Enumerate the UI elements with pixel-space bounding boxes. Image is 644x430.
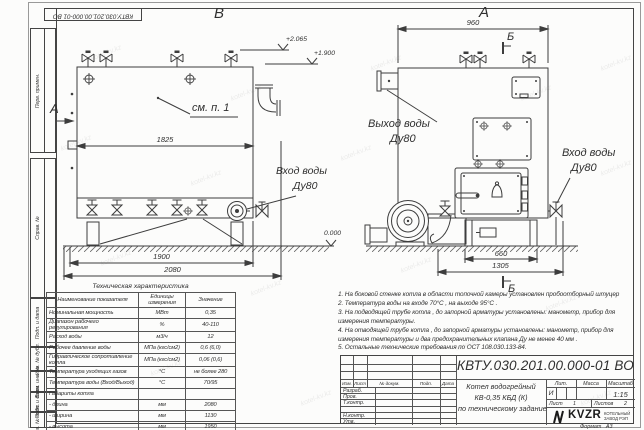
spec-name: Температура уходящих газов	[47, 367, 139, 378]
inlet-water-label-right-1: Вход воды	[562, 148, 615, 159]
sheet-label: Лист	[549, 401, 563, 407]
note-line: 2. Температура воды на входе 70°С , на в…	[338, 300, 636, 309]
spec-name: Рабочее давление воды	[47, 343, 139, 354]
callout-see-note-1: см. п. 1	[192, 103, 229, 114]
right-view-drawing	[365, 25, 578, 288]
kvzr-logo: KVZR КОТЕЛЬНЫЙ ЗАВОД РЭП	[546, 407, 635, 425]
dim-2080: 2080	[64, 266, 281, 274]
sheets-value: 2	[624, 401, 627, 407]
spec-header-value: Значение	[186, 293, 236, 308]
spec-value: 0,06 (0,6)	[186, 354, 236, 367]
table-row: Габариты котла	[47, 389, 236, 400]
view-label-a: А	[479, 5, 489, 20]
note-line: 3. На подводящей трубе котла , до запорн…	[338, 309, 636, 318]
spec-value: 0,6 (6,0)	[186, 343, 236, 354]
row-tkontr: Т.контр.	[343, 400, 364, 406]
table-row: Рабочее давление водыМПа (кгс/см2)0,6 (6…	[47, 343, 236, 354]
format-word: Формат	[580, 424, 601, 430]
note-line: 5. Остальные технические требования по О…	[338, 344, 636, 353]
spec-name: Габариты котла	[47, 389, 139, 400]
spec-name: - высота	[47, 422, 139, 430]
dim-660: 660	[465, 250, 537, 258]
note-line: 4. На отводящей трубе котла , до запорно…	[338, 327, 636, 336]
dim-1825: 1825	[77, 136, 253, 144]
kvzr-logo-sub1: КОТЕЛЬНЫЙ	[604, 411, 630, 416]
spec-name: Гидравлическое сопротивление котла	[47, 354, 139, 367]
product-name-1: Котел водогрейный	[458, 382, 544, 391]
spec-name: Температура воды (Вход/Выход)	[47, 378, 139, 389]
outlet-water-label-1: Выход воды	[368, 119, 430, 130]
row-utv: Утв.	[343, 419, 355, 425]
spec-unit: мм	[139, 422, 186, 430]
spec-unit: м3/ч	[139, 332, 186, 343]
view-label-b: В	[214, 6, 224, 21]
spec-unit: МВт	[139, 308, 186, 319]
scale-header: Масштаб	[606, 381, 635, 387]
table-row: Номинальная мощностьМВт0,35	[47, 308, 236, 319]
spec-value: 40-110	[186, 319, 236, 332]
table-row: Температура воды (Вход/Выход)°С70/95	[47, 378, 236, 389]
spec-table-title: Техническая характеристика	[46, 284, 235, 291]
spec-value: 12	[186, 332, 236, 343]
note-line: измерения температуры.	[338, 318, 636, 327]
title-block: КВТУ.030.201.00.000-01 ВО Котел водогрей…	[340, 355, 634, 424]
mass-header: Масса	[576, 381, 606, 387]
spec-name: - длина	[47, 400, 139, 411]
outlet-water-label-2: Ду80	[390, 134, 416, 145]
table-row: - длинамм2080	[47, 400, 236, 411]
row-prov: Пров.	[343, 394, 357, 400]
dim-1900: 1900	[70, 253, 253, 261]
section-arrow-label-a: А	[50, 102, 59, 115]
kvzr-logo-text: KVZR	[568, 409, 601, 421]
table-row: Температура уходящих газов°Сне более 280	[47, 367, 236, 378]
inlet-water-label-left-1: Вход воды	[276, 166, 327, 177]
level-mark-0000: 0.000	[324, 231, 341, 238]
level-mark-2065: +2.065	[286, 37, 307, 44]
sheet-value: 1	[573, 401, 576, 407]
sheets-label: Листов	[594, 401, 613, 407]
spec-unit: мм	[139, 400, 186, 411]
spec-name: Номинальная мощность	[47, 308, 139, 319]
inlet-water-label-left-2: Ду80	[293, 181, 317, 192]
kvzr-logo-icon	[552, 409, 566, 424]
drawing-sheet: kotel-kv.kz kotel-kv.kz kotel-kv.kz kote…	[0, 0, 644, 430]
lit-value: И	[546, 390, 556, 397]
product-name-2: КВ-0,35 КБД (К)	[458, 393, 544, 402]
dim-960: 960	[398, 19, 548, 27]
table-row: Расход водым3/ч12	[47, 332, 236, 343]
scale-value: 1:15	[606, 390, 635, 399]
col-date: Дата	[440, 381, 456, 386]
spec-unit: МПа (кгс/см2)	[139, 354, 186, 367]
spec-value: 1950	[186, 422, 236, 430]
note-line: 1. На боковой стенке котла в области топ…	[338, 291, 636, 300]
spec-unit: мм	[139, 411, 186, 422]
spec-unit: МПа (кгс/см2)	[139, 343, 186, 354]
col-list: Лист	[353, 381, 367, 386]
spec-name: - ширина	[47, 411, 139, 422]
lit-header: Лит.	[546, 381, 576, 387]
spec-value: 1130	[186, 411, 236, 422]
spec-value	[186, 389, 236, 400]
document-designation: КВТУ.030.201.00.000-01 ВО	[456, 358, 635, 373]
table-row: - высотамм1950	[47, 422, 236, 430]
format-value: А3	[606, 424, 613, 430]
spec-name: Расход воды	[47, 332, 139, 343]
spec-value: не более 280	[186, 367, 236, 378]
spec-value: 0,35	[186, 308, 236, 319]
kvzr-logo-sub2: ЗАВОД РЭП	[604, 416, 628, 421]
table-row: Гидравлическое сопротивление котлаМПа (к…	[47, 354, 236, 367]
col-izm: Изм.	[341, 381, 353, 386]
spec-unit: °С	[139, 378, 186, 389]
product-name-3: по техническому задание	[458, 404, 544, 413]
col-sign: Подп.	[412, 381, 440, 386]
table-row: - ширинамм1130	[47, 411, 236, 422]
inlet-water-label-right-2: Ду80	[571, 163, 597, 174]
spec-unit: %	[139, 319, 186, 332]
spec-name: Диапазон рабочего регулирования	[47, 319, 139, 332]
format-label: Формат А3	[580, 425, 613, 430]
spec-header-units-2: измерения	[141, 300, 183, 306]
spec-unit: °С	[139, 367, 186, 378]
col-doc: № докум.	[367, 381, 412, 386]
level-mark-1900: +1.900	[314, 51, 335, 58]
spec-table: Наименование показателя Единицыизмерения…	[46, 292, 236, 430]
dim-1305: 1305	[438, 262, 563, 270]
spec-value: 2080	[186, 400, 236, 411]
section-mark-b-top: Б	[507, 32, 514, 43]
left-view-drawing	[57, 44, 336, 280]
spec-header-name: Наименование показателя	[47, 293, 139, 308]
spec-value: 70/95	[186, 378, 236, 389]
notes-block: 1. На боковой стенке котла в области топ…	[338, 291, 636, 353]
table-row: Диапазон рабочего регулирования%40-110	[47, 319, 236, 332]
spec-unit	[139, 389, 186, 400]
